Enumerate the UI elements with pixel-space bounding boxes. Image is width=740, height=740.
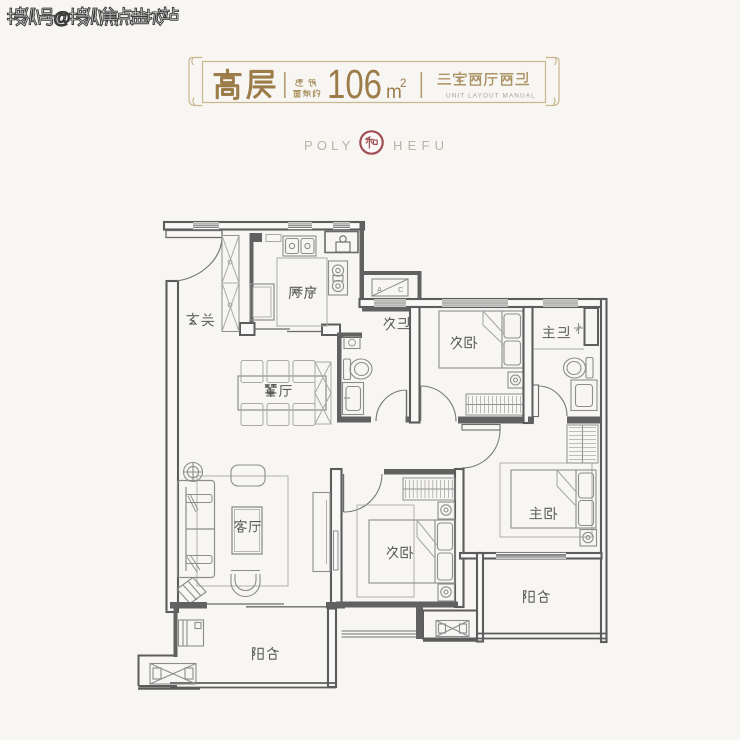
svg-text:@: @ — [54, 8, 71, 28]
svg-text:106: 106 — [327, 61, 382, 107]
svg-text:UNIT LAYOUT MANUAL: UNIT LAYOUT MANUAL — [446, 93, 536, 100]
svg-text:C: C — [398, 285, 404, 294]
svg-text:2: 2 — [400, 78, 406, 90]
svg-text:A: A — [377, 285, 382, 294]
svg-text:POLY: POLY — [304, 138, 355, 153]
svg-text:HEFU: HEFU — [393, 138, 449, 153]
